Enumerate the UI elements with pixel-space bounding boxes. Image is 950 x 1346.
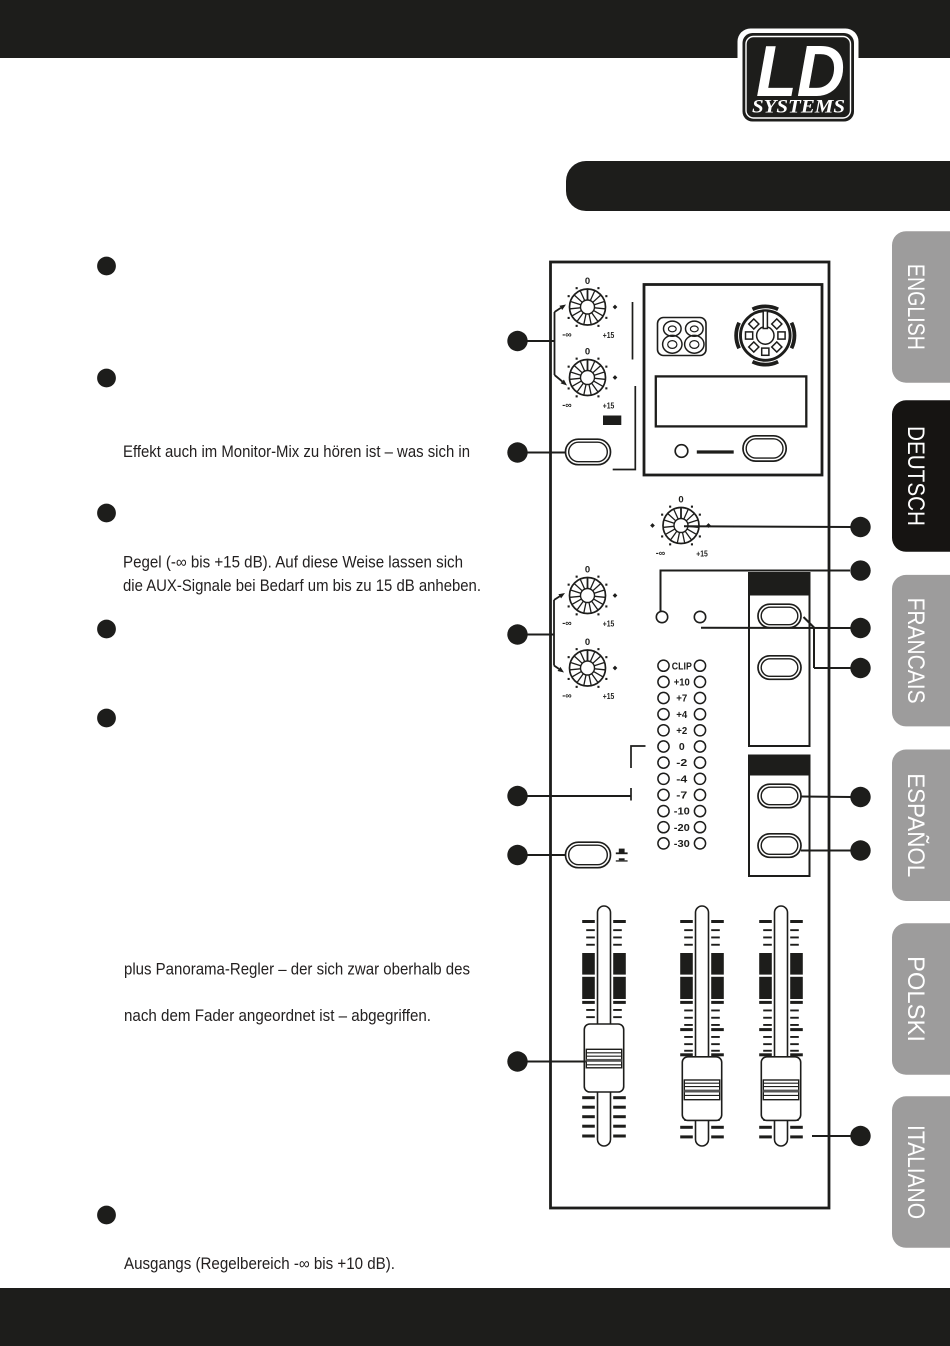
svg-text:0: 0: [585, 565, 590, 576]
svg-text:0: 0: [585, 276, 590, 287]
svg-text:+2: +2: [676, 725, 687, 737]
svg-text:-7: -7: [676, 790, 687, 802]
svg-text:0: 0: [678, 495, 683, 506]
svg-text:POLSKI: POLSKI: [902, 956, 929, 1042]
svg-text:plus Panorama-Regler – der sic: plus Panorama-Regler – der sich zwar obe…: [124, 961, 470, 979]
svg-text:ITALIANO: ITALIANO: [902, 1125, 929, 1219]
svg-text:0: 0: [679, 741, 685, 753]
svg-text:Pegel (-∞ bis +15 dB). Auf die: Pegel (-∞ bis +15 dB). Auf diese Weise l…: [123, 553, 463, 571]
svg-text:ESPAÑOL: ESPAÑOL: [902, 773, 929, 877]
svg-text:ENGLISH: ENGLISH: [902, 264, 929, 350]
svg-text:-30: -30: [674, 838, 690, 850]
svg-text:0: 0: [585, 637, 590, 648]
svg-text:+15: +15: [603, 401, 615, 411]
svg-text:-2: -2: [676, 757, 687, 769]
svg-text:0: 0: [585, 347, 590, 358]
svg-text:+7: +7: [676, 693, 687, 705]
svg-text:-4: -4: [676, 773, 687, 785]
svg-text:SYSTEMS: SYSTEMS: [752, 98, 845, 118]
svg-text:nach dem Fader angeordnet ist: nach dem Fader angeordnet ist – abgegrif…: [124, 1007, 431, 1025]
svg-text:+15: +15: [603, 619, 615, 629]
svg-text:+15: +15: [603, 691, 615, 701]
svg-text:Ausgangs (Regelbereich -∞ bis: Ausgangs (Regelbereich -∞ bis +10 dB).: [124, 1255, 395, 1273]
svg-text:+15: +15: [696, 549, 708, 559]
svg-text:CLIP: CLIP: [672, 660, 692, 672]
svg-text:+4: +4: [676, 709, 687, 721]
svg-text:-10: -10: [674, 806, 690, 818]
svg-text:+15: +15: [603, 330, 615, 340]
svg-text:+10: +10: [674, 677, 690, 689]
svg-text:-∞: -∞: [562, 400, 572, 410]
svg-text:die AUX-Signale bei Bedarf um: die AUX-Signale bei Bedarf um bis zu 15 …: [123, 577, 481, 595]
svg-text:-∞: -∞: [656, 548, 666, 558]
svg-text:-∞: -∞: [562, 618, 572, 628]
svg-text:Effekt auch im Monitor-Mix zu: Effekt auch im Monitor-Mix zu hören ist …: [123, 443, 470, 461]
svg-text:-∞: -∞: [562, 330, 572, 340]
svg-text:DEUTSCH: DEUTSCH: [902, 426, 929, 526]
svg-text:FRANCAIS: FRANCAIS: [902, 598, 929, 704]
svg-text:-∞: -∞: [562, 691, 572, 701]
svg-text:-20: -20: [674, 822, 690, 834]
